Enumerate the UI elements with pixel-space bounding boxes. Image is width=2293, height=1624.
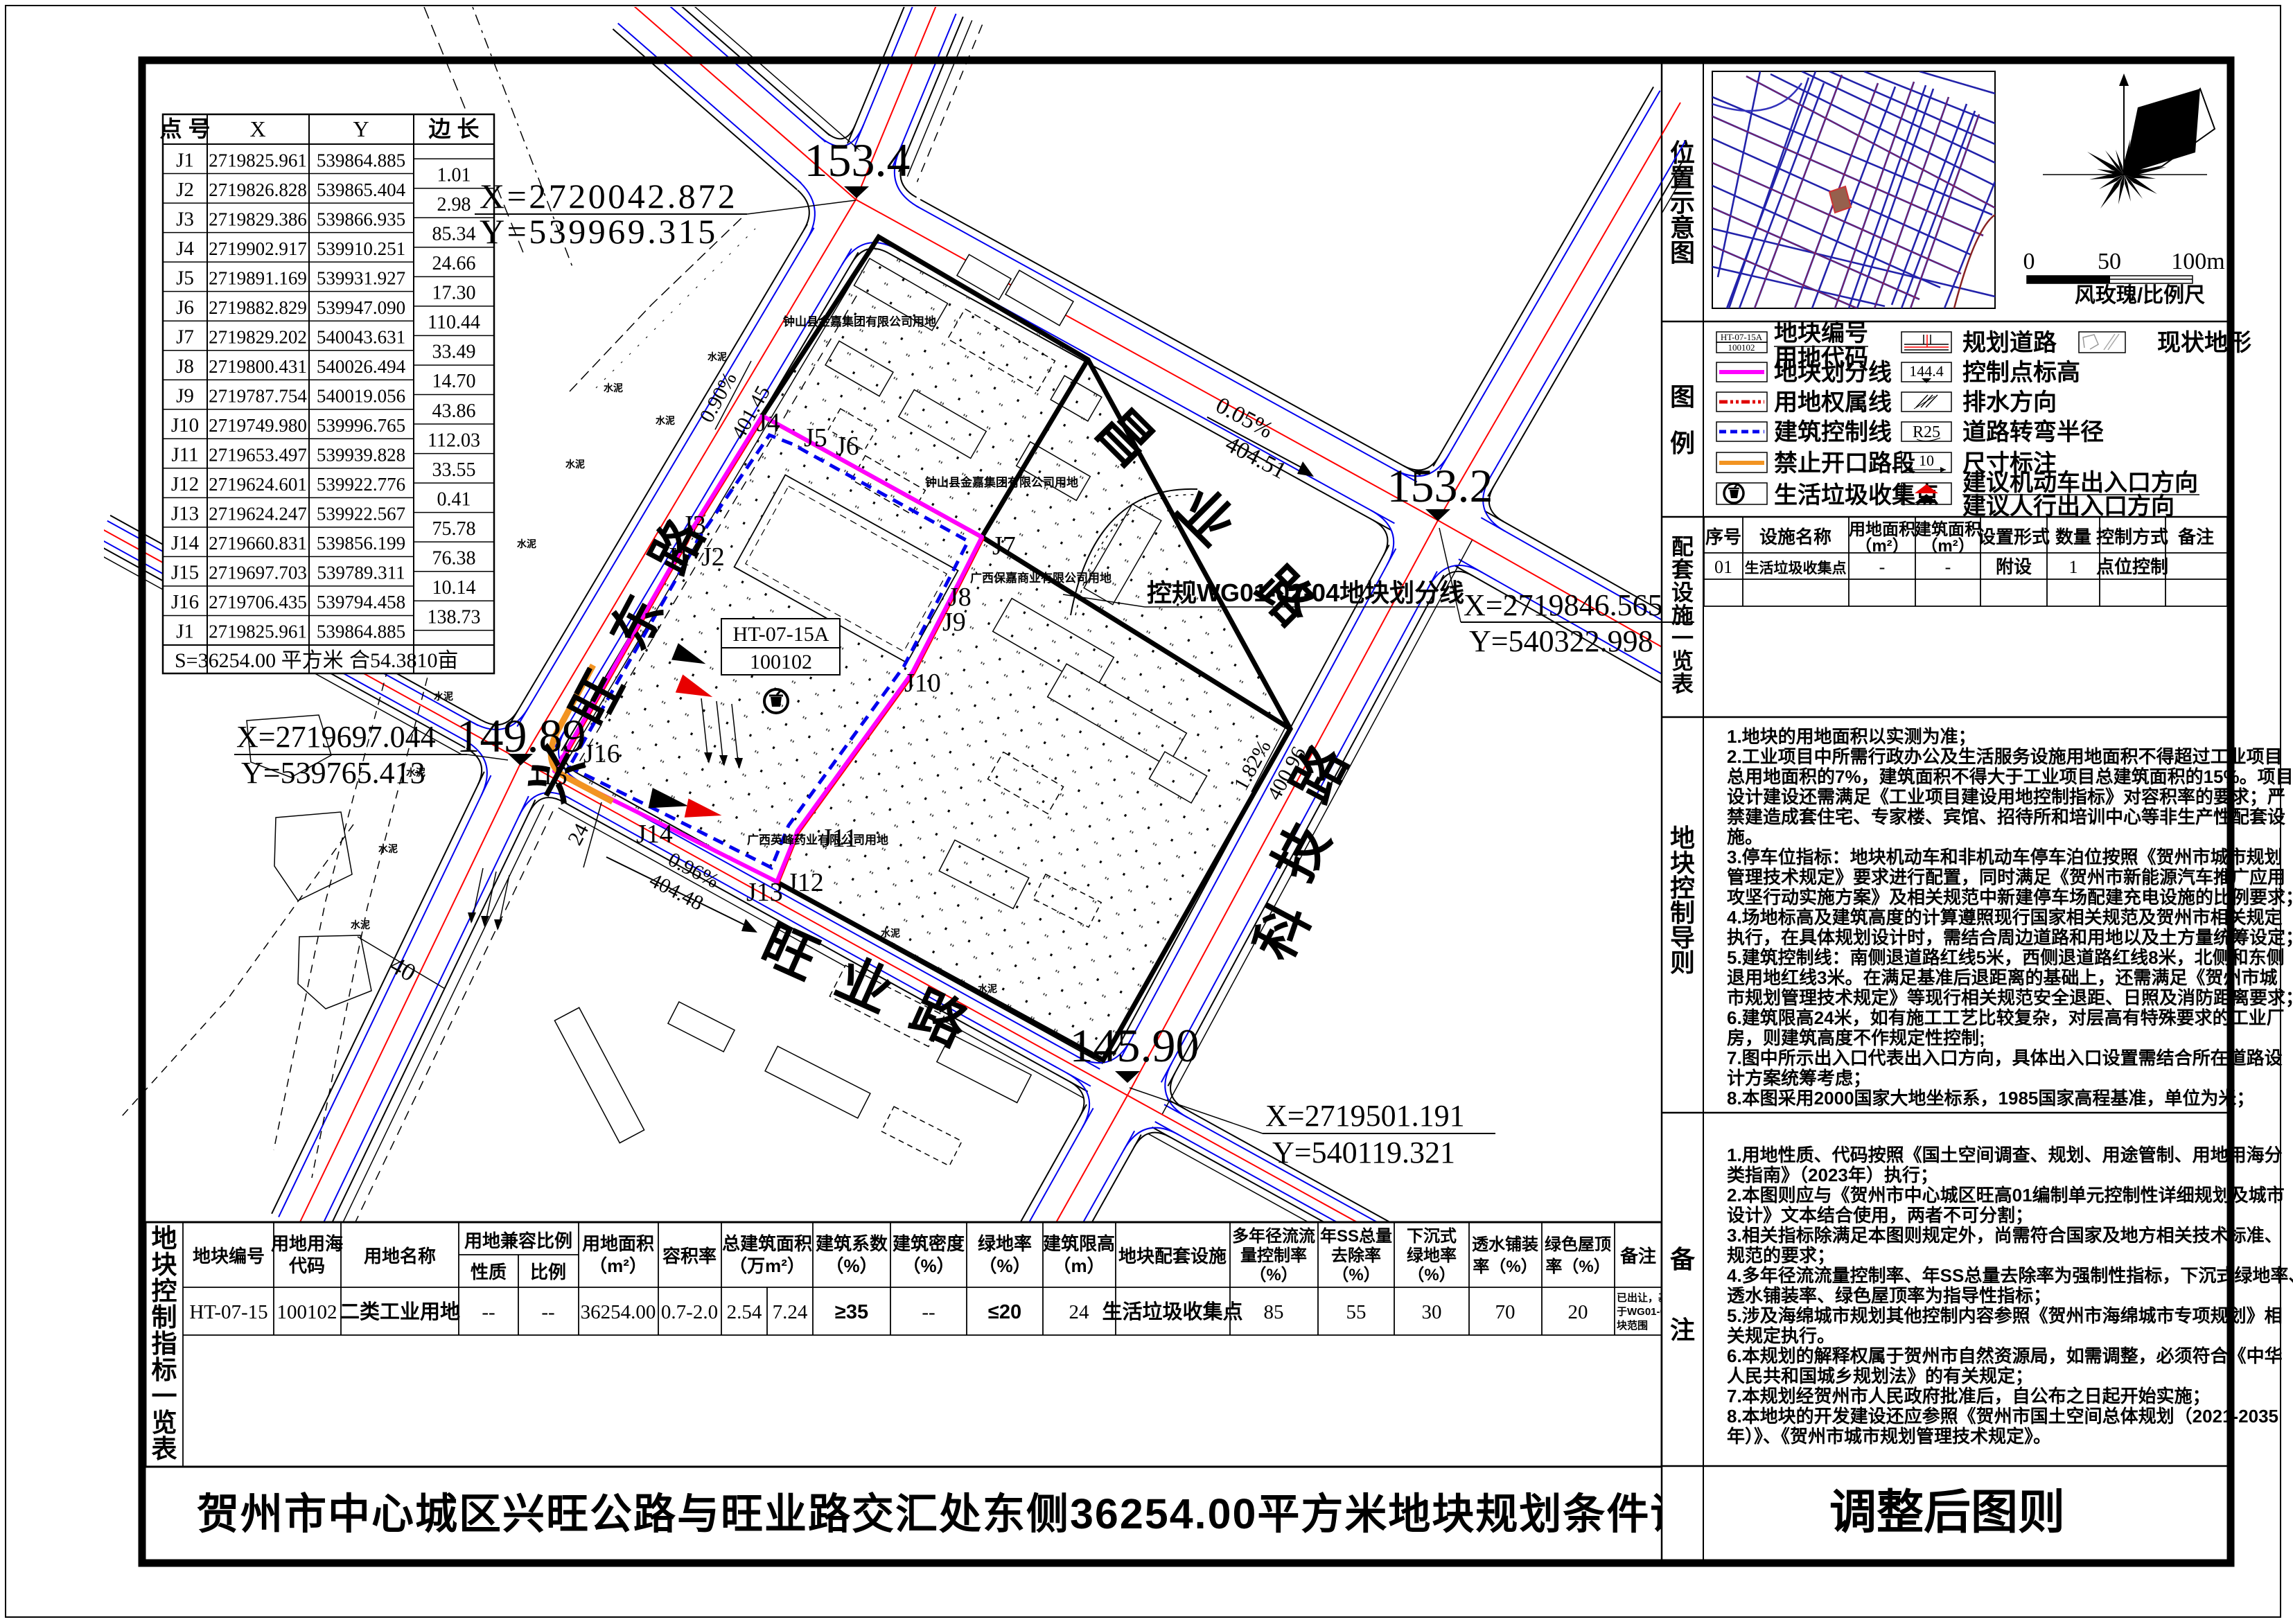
svg-text:539922.567: 539922.567 [317, 504, 405, 524]
svg-text:广西保嘉商业有限公司用地: 广西保嘉商业有限公司用地 [970, 571, 1112, 585]
svg-text:8.本地块的开发建设还应参照《贺州市国土空间总体规划（202: 8.本地块的开发建设还应参照《贺州市国土空间总体规划（2021-2035 [1727, 1406, 2278, 1427]
svg-text:R25: R25 [1913, 423, 1940, 441]
svg-text:（%）: （%） [1332, 1266, 1380, 1285]
svg-text:序号: 序号 [1705, 527, 1741, 547]
svg-text:76.38: 76.38 [432, 547, 476, 569]
svg-text:（m²）: （m²） [1855, 537, 1908, 556]
svg-text:（%）: （%） [825, 1255, 877, 1276]
svg-text:14.70: 14.70 [432, 371, 476, 392]
svg-text:注: 注 [1670, 1316, 1695, 1344]
svg-text:建议人行出入口方向: 建议人行出入口方向 [1962, 493, 2175, 520]
svg-text:-: - [1945, 557, 1951, 577]
svg-text:HT-07-15A: HT-07-15A [733, 623, 829, 646]
svg-text:控制方式: 控制方式 [2096, 527, 2168, 547]
svg-text:配: 配 [1671, 534, 1694, 559]
svg-text:539866.935: 539866.935 [317, 209, 405, 229]
svg-text:540043.631: 540043.631 [317, 326, 405, 347]
svg-text:（m²）: （m²） [589, 1255, 647, 1276]
svg-text:览: 览 [1671, 648, 1694, 673]
svg-text:33.49: 33.49 [432, 342, 476, 363]
svg-text:2719825.961: 2719825.961 [209, 621, 307, 642]
svg-text:539996.765: 539996.765 [317, 415, 405, 436]
svg-text:一: 一 [1671, 626, 1694, 651]
svg-text:控制点标高: 控制点标高 [1962, 360, 2080, 386]
svg-text:制: 制 [1670, 899, 1695, 927]
svg-text:2719829.386: 2719829.386 [209, 209, 307, 229]
svg-text:禁建造成套住宅、专家楼、宾馆、招待所和培训中心等非生产性配套: 禁建造成套住宅、专家楼、宾馆、招待所和培训中心等非生产性配套设 [1727, 806, 2285, 827]
svg-text:2719660.831: 2719660.831 [209, 533, 307, 554]
svg-text:建议机动车出入口方向: 建议机动车出入口方向 [1962, 470, 2198, 496]
svg-text:539922.776: 539922.776 [317, 474, 405, 495]
svg-text:153.4: 153.4 [805, 134, 911, 186]
svg-text:J10: J10 [904, 669, 941, 698]
svg-text:排水方向: 排水方向 [1962, 389, 2057, 416]
svg-text:J5: J5 [176, 267, 194, 289]
svg-text:J1: J1 [667, 542, 690, 572]
svg-text:X=2719697.044: X=2719697.044 [236, 720, 436, 754]
svg-text:HT-07-15: HT-07-15 [189, 1301, 267, 1323]
svg-text:套: 套 [1671, 557, 1694, 582]
svg-text:J1: J1 [176, 621, 194, 643]
svg-text:设计建设还需满足《工业项目建设用地控制指标》对容积率的要求；: 设计建设还需满足《工业项目建设用地控制指标》对容积率的要求；严 [1727, 786, 2285, 807]
svg-text:则: 则 [1670, 948, 1695, 977]
svg-text:55: 55 [1346, 1301, 1367, 1323]
svg-text:X=2719846.565: X=2719846.565 [1464, 588, 1663, 622]
svg-text:2719697.703: 2719697.703 [209, 563, 307, 583]
svg-text:图: 图 [1670, 238, 1695, 267]
svg-text:J7: J7 [176, 326, 194, 348]
svg-text:J13: J13 [171, 503, 199, 525]
svg-text:539910.251: 539910.251 [317, 238, 405, 259]
svg-text:--: -- [541, 1301, 554, 1323]
svg-text:539864.885: 539864.885 [317, 150, 405, 170]
svg-text:透水铺装率、绿色屋顶率为指导性指标；: 透水铺装率、绿色屋顶率为指导性指标； [1727, 1285, 2051, 1306]
svg-text:市规划管理技术规定》等现行相关规范安全退距、日照及消防距离要: 市规划管理技术规定》等现行相关规范安全退距、日照及消防距离要求； [1727, 987, 2293, 1008]
svg-text:制: 制 [152, 1303, 177, 1332]
svg-text:7.图中所示出入口代表出入口方向，具体出入口设置需结合所在道: 7.图中所示出入口代表出入口方向，具体出入口设置需结合所在道路设 [1727, 1048, 2283, 1068]
svg-text:J12: J12 [171, 473, 199, 495]
svg-text:年）》、《贺州市城市规划管理技术规定》。: 年）》、《贺州市城市规划管理技术规定》。 [1727, 1426, 2051, 1447]
svg-text:水泥: 水泥 [881, 928, 900, 939]
svg-text:透水铺装: 透水铺装 [1472, 1235, 1538, 1254]
svg-text:建筑控制线: 建筑控制线 [1774, 419, 1892, 445]
svg-text:控: 控 [1670, 874, 1695, 902]
svg-text:0.41: 0.41 [437, 488, 471, 510]
svg-text:0: 0 [2023, 249, 2035, 274]
svg-text:540019.056: 540019.056 [317, 386, 405, 407]
svg-text:2719826.828: 2719826.828 [209, 179, 307, 200]
svg-text:位: 位 [1670, 139, 1695, 167]
svg-text:100m: 100m [2171, 249, 2224, 274]
svg-text:总用地面积的7%，建筑面积不得大于工业项目总建筑面积的15%: 总用地面积的7%，建筑面积不得大于工业项目总建筑面积的15%。项目 [1727, 766, 2293, 787]
svg-text:（%）: （%） [978, 1255, 1030, 1276]
svg-text:17.30: 17.30 [432, 283, 476, 304]
svg-text:539865.404: 539865.404 [317, 179, 406, 200]
svg-text:代码: 代码 [288, 1255, 325, 1276]
svg-text:备: 备 [1670, 1245, 1696, 1273]
svg-text:块: 块 [1670, 849, 1695, 877]
svg-text:执行，在具体规划设计时，需结合周边道路和用地以及土方量统筹设: 执行，在具体规划设计时，需结合周边道路和用地以及土方量统筹设定； [1727, 927, 2293, 948]
svg-text:总建筑面积: 总建筑面积 [722, 1233, 812, 1254]
svg-text:J4: J4 [757, 408, 780, 437]
svg-text:Y=539969.315: Y=539969.315 [480, 212, 718, 251]
svg-text:539789.311: 539789.311 [317, 563, 405, 583]
svg-text:量控制率: 量控制率 [1240, 1246, 1307, 1265]
svg-text:1.地块的用地面积以实测为准；: 1.地块的用地面积以实测为准； [1727, 726, 1976, 747]
svg-text:J11: J11 [171, 444, 198, 466]
svg-text:例: 例 [1670, 429, 1695, 457]
svg-text:2.本图则应与《贺州市中心城区旺高01编制单元控制性详细规划: 2.本图则应与《贺州市中心城区旺高01编制单元控制性详细规划及城市 [1727, 1185, 2285, 1206]
svg-text:4.多年径流流量控制率、年SS总量去除率为强制性指标，下沉式: 4.多年径流流量控制率、年SS总量去除率为强制性指标，下沉式绿地率、 [1727, 1265, 2293, 1286]
svg-text:J8: J8 [176, 355, 194, 378]
svg-text:J14: J14 [171, 532, 200, 554]
svg-text:2719706.435: 2719706.435 [209, 592, 307, 612]
svg-text:用地权属线: 用地权属线 [1774, 389, 1892, 416]
svg-text:用地名称: 用地名称 [364, 1246, 436, 1266]
svg-text:边 长: 边 长 [429, 116, 480, 141]
svg-text:施。: 施。 [1727, 827, 1763, 847]
svg-text:房，则建筑高度不作规定性控制;: 房，则建筑高度不作规定性控制; [1727, 1027, 1985, 1048]
svg-text:水泥: 水泥 [656, 415, 675, 426]
svg-text:建筑限高: 建筑限高 [1043, 1233, 1115, 1254]
svg-text:1.01: 1.01 [437, 165, 471, 186]
svg-text:点位控制: 点位控制 [2096, 556, 2168, 577]
svg-text:J2: J2 [701, 542, 725, 572]
svg-text:Y=540119.321: Y=540119.321 [1272, 1136, 1455, 1170]
svg-text:人民共和国城乡规划法》的有关规定；: 人民共和国城乡规划法》的有关规定； [1727, 1366, 2033, 1386]
svg-text:8.本图采用2000国家大地坐标系，1985国家高程基准，单: 8.本图采用2000国家大地坐标系，1985国家高程基准，单位为米； [1727, 1088, 2254, 1109]
svg-text:类指南》（2023年）执行；: 类指南》（2023年）执行； [1727, 1165, 1938, 1185]
svg-text:2719825.961: 2719825.961 [209, 150, 307, 170]
svg-text:水泥: 水泥 [708, 351, 727, 362]
svg-text:建筑密度: 建筑密度 [893, 1233, 965, 1254]
svg-text:Y=540322.998: Y=540322.998 [1469, 624, 1653, 658]
svg-text:现状地形: 现状地形 [2157, 330, 2251, 356]
svg-text:性质: 性质 [471, 1262, 507, 1282]
svg-text:2719902.917: 2719902.917 [209, 238, 307, 259]
svg-text:备注: 备注 [1619, 1246, 1656, 1266]
svg-text:风玫瑰/比例尺: 风玫瑰/比例尺 [2075, 284, 2205, 307]
svg-text:控规WG01-02-04地块划分线: 控规WG01-02-04地块划分线 [1147, 579, 1464, 607]
svg-text:地块配套设施: 地块配套设施 [1118, 1246, 1227, 1266]
svg-text:用地面积: 用地面积 [582, 1233, 654, 1254]
svg-text:01: 01 [1714, 557, 1732, 577]
svg-text:建筑面积: 建筑面积 [1915, 520, 1981, 539]
svg-text:153.2: 153.2 [1387, 459, 1493, 512]
svg-text:75.78: 75.78 [432, 518, 476, 540]
svg-text:设置形式: 设置形式 [1978, 527, 2050, 547]
svg-text:设施名称: 设施名称 [1759, 527, 1831, 547]
svg-text:（m²）: （m²） [1921, 537, 1974, 556]
svg-text:0.7-2.0: 0.7-2.0 [661, 1301, 718, 1323]
svg-text:5.涉及海绵城市规划其他控制内容参照《贺州市海绵城市专项规划: 5.涉及海绵城市规划其他控制内容参照《贺州市海绵城市专项规划》相 [1727, 1305, 2283, 1326]
svg-text:539856.199: 539856.199 [317, 533, 405, 554]
svg-text:地块编号: 地块编号 [193, 1246, 265, 1266]
svg-text:J4: J4 [176, 238, 194, 260]
svg-text:（万m²）: （万m²） [729, 1255, 805, 1276]
svg-text:100102: 100102 [750, 651, 812, 673]
svg-text:2719882.829: 2719882.829 [209, 297, 307, 318]
svg-text:水泥: 水泥 [565, 459, 585, 470]
svg-text:绿地率: 绿地率 [978, 1233, 1032, 1254]
svg-text:调整后图则: 调整后图则 [1829, 1486, 2065, 1539]
svg-text:容积率: 容积率 [662, 1246, 717, 1266]
svg-text:生活垃圾收集点: 生活垃圾收集点 [1745, 560, 1847, 576]
svg-text:水泥: 水泥 [351, 919, 370, 930]
svg-text:J3: J3 [683, 511, 706, 540]
svg-text:--: -- [482, 1301, 495, 1323]
svg-text:85.34: 85.34 [432, 224, 476, 245]
svg-text:J9: J9 [942, 608, 966, 637]
svg-text:144.4: 144.4 [1909, 362, 1944, 380]
svg-text:水泥: 水泥 [434, 691, 453, 702]
svg-text:6.本规划的解释权属于贺州市自然资源局，如需调整，必须符合《: 6.本规划的解释权属于贺州市自然资源局，如需调整，必须符合《中华 [1727, 1345, 2283, 1366]
svg-text:设: 设 [1671, 580, 1694, 605]
svg-text:2719624.247: 2719624.247 [209, 504, 307, 524]
svg-text:138.73: 138.73 [428, 606, 481, 628]
svg-text:112.03: 112.03 [428, 430, 480, 451]
svg-text:（%）: （%） [1407, 1266, 1455, 1285]
svg-text:2719829.202: 2719829.202 [209, 326, 307, 347]
svg-text:J6: J6 [176, 297, 194, 319]
svg-text:率（%）: 率（%） [1545, 1257, 1610, 1276]
svg-text:数量: 数量 [2055, 527, 2091, 547]
svg-text:10: 10 [1919, 452, 1934, 469]
svg-text:J5: J5 [804, 423, 827, 452]
svg-text:J12: J12 [787, 868, 824, 897]
svg-text:J3: J3 [176, 208, 194, 230]
svg-text:多年径流流: 多年径流流 [1232, 1226, 1315, 1246]
svg-text:用地兼容比例: 用地兼容比例 [464, 1230, 572, 1251]
svg-text:设计》文本结合使用，两者不可分割；: 设计》文本结合使用，两者不可分割； [1727, 1205, 2033, 1226]
svg-text:比例: 比例 [530, 1262, 566, 1282]
svg-text:70: 70 [1495, 1301, 1516, 1323]
svg-text:20: 20 [1568, 1301, 1588, 1323]
svg-text:2719653.497: 2719653.497 [209, 445, 307, 466]
svg-text:计方案统筹考虑；: 计方案统筹考虑； [1727, 1068, 1871, 1088]
svg-text:2719787.754: 2719787.754 [209, 386, 307, 407]
svg-text:J13: J13 [746, 878, 783, 907]
svg-text:J16: J16 [583, 739, 620, 768]
svg-text:道路转弯半径: 道路转弯半径 [1962, 418, 2104, 445]
svg-text:2.工业项目中所需行政办公及生活服务设施用地面积不得超过工业: 2.工业项目中所需行政办公及生活服务设施用地面积不得超过工业项目 [1727, 746, 2283, 767]
svg-text:攻坚行动实施方案》及相关规范中新建停车场配建充电设施的比例要: 攻坚行动实施方案》及相关规范中新建停车场配建充电设施的比例要求； [1727, 887, 2293, 908]
svg-text:控: 控 [152, 1277, 177, 1305]
svg-text:3.停车位指标：地块机动车和非机动车停车泊位按照《贺州市城市: 3.停车位指标：地块机动车和非机动车停车泊位按照《贺州市城市规划 [1727, 847, 2283, 867]
svg-text:X=2719501.191: X=2719501.191 [1265, 1099, 1465, 1133]
svg-text:表: 表 [1671, 671, 1694, 696]
svg-text:J6: J6 [836, 432, 859, 461]
svg-text:36254.00: 36254.00 [581, 1301, 656, 1323]
svg-text:539794.458: 539794.458 [317, 592, 405, 612]
svg-text:2719749.980: 2719749.980 [209, 415, 307, 436]
svg-text:年SS总量: 年SS总量 [1320, 1226, 1392, 1246]
svg-text:J14: J14 [636, 820, 673, 849]
svg-text:100102: 100102 [277, 1301, 337, 1323]
svg-text:J2: J2 [176, 179, 194, 201]
svg-text:下沉式: 下沉式 [1407, 1227, 1457, 1246]
svg-text:地: 地 [1670, 824, 1695, 852]
svg-text:J15: J15 [171, 562, 199, 584]
svg-text:块: 块 [152, 1251, 177, 1279]
svg-text:生活垃圾收集点: 生活垃圾收集点 [1102, 1300, 1242, 1323]
svg-text:110.44: 110.44 [428, 312, 480, 333]
svg-text:X: X [249, 116, 265, 141]
svg-text:7.24: 7.24 [773, 1301, 808, 1323]
svg-text:绿色屋顶: 绿色屋顶 [1545, 1235, 1611, 1254]
svg-text:（%）: （%） [902, 1255, 954, 1276]
svg-text:退用地红线3米。在满足基准后退距离的基础上，还需满足《贺州市: 退用地红线3米。在满足基准后退距离的基础上，还需满足《贺州市城 [1727, 967, 2277, 988]
svg-text:J9: J9 [176, 385, 194, 407]
svg-text:览: 览 [152, 1409, 177, 1437]
svg-text:539864.885: 539864.885 [317, 621, 405, 642]
svg-text:一: 一 [152, 1382, 177, 1411]
svg-text:24.66: 24.66 [432, 253, 476, 274]
svg-text:S=36254.00 平方米 合54.3810亩: S=36254.00 平方米 合54.3810亩 [175, 649, 458, 672]
svg-text:2719800.431: 2719800.431 [209, 356, 307, 377]
svg-text:J7: J7 [992, 531, 1016, 561]
svg-text:2.54: 2.54 [727, 1301, 762, 1323]
svg-text:539947.090: 539947.090 [317, 297, 405, 318]
svg-text:≤20: ≤20 [988, 1301, 1021, 1323]
svg-text:1.用地性质、代码按照《国土空间调查、规划、用途管制、用地用: 1.用地性质、代码按照《国土空间调查、规划、用途管制、用地用海分 [1727, 1145, 2283, 1165]
svg-text:2.98: 2.98 [437, 194, 471, 215]
svg-text:广西英峰药业有限公司用地: 广西英峰药业有限公司用地 [747, 833, 888, 847]
svg-text:4.场地标高及建筑高度的计算遵照现行国家相关规范及贺州市相关: 4.场地标高及建筑高度的计算遵照现行国家相关规范及贺州市相关规定 [1727, 907, 2283, 928]
svg-text:1: 1 [2069, 557, 2078, 577]
svg-text:地: 地 [152, 1224, 177, 1253]
svg-text:（%）: （%） [1249, 1266, 1297, 1285]
svg-text:43.86: 43.86 [432, 400, 476, 422]
svg-text:点 号: 点 号 [160, 116, 211, 141]
svg-text:水泥: 水泥 [517, 538, 536, 549]
svg-text:6.建筑限高24米，如有施工工艺比较复杂，对层高有特殊要求的: 6.建筑限高24米，如有施工工艺比较复杂，对层高有特殊要求的工业厂 [1727, 1007, 2285, 1028]
svg-text:2719891.169: 2719891.169 [209, 267, 307, 288]
svg-text:地块划分线: 地块划分线 [1774, 360, 1892, 386]
svg-text:去除率: 去除率 [1331, 1246, 1381, 1265]
svg-text:Y: Y [353, 116, 369, 141]
svg-text:水泥: 水泥 [978, 983, 997, 994]
svg-text:HT-07-15A: HT-07-15A [1721, 332, 1763, 342]
svg-text:539939.828: 539939.828 [317, 445, 405, 466]
svg-text:关规定执行。: 关规定执行。 [1727, 1325, 1835, 1346]
svg-text:100102: 100102 [1728, 342, 1755, 353]
svg-text:用地面积: 用地面积 [1849, 520, 1915, 539]
svg-text:附设: 附设 [1996, 556, 2032, 577]
svg-text:建筑系数: 建筑系数 [816, 1233, 888, 1254]
svg-text:水泥: 水泥 [604, 382, 623, 394]
svg-text:-: - [1879, 557, 1886, 577]
svg-text:意: 意 [1670, 213, 1695, 242]
svg-text:50: 50 [2098, 249, 2121, 274]
svg-text:85: 85 [1264, 1301, 1284, 1323]
svg-text:管理技术规定》要求进行配置，同时满足《贺州市新能源汽车推广应: 管理技术规定》要求进行配置，同时满足《贺州市新能源汽车推广应用 [1727, 867, 2285, 888]
svg-text:3.相关指标除满足本图则规定外，尚需符合国家及地方相关技术标: 3.相关指标除满足本图则规定外，尚需符合国家及地方相关技术标准、 [1727, 1225, 2283, 1246]
svg-text:规划道路: 规划道路 [1962, 330, 2057, 356]
svg-text:率（%）: 率（%） [1473, 1257, 1537, 1276]
svg-text:33.55: 33.55 [432, 459, 476, 481]
svg-text:备注: 备注 [2177, 527, 2214, 547]
svg-text:5.建筑控制线：南侧退道路红线5米，西侧退道路红线8米，北侧: 5.建筑控制线：南侧退道路红线5米，西侧退道路红线8米，北侧和东侧 [1727, 947, 2285, 968]
svg-text:10.14: 10.14 [432, 577, 476, 599]
svg-text:X=2720042.872: X=2720042.872 [480, 177, 737, 215]
svg-text:钟山县金嘉集团有限公司用地: 钟山县金嘉集团有限公司用地 [925, 475, 1078, 489]
svg-text:表: 表 [152, 1435, 177, 1463]
svg-text:7.本规划经贺州市人民政府批准后，自公布之日起开始实施；: 7.本规划经贺州市人民政府批准后，自公布之日起开始实施； [1727, 1386, 2211, 1406]
svg-text:绿地率: 绿地率 [1407, 1246, 1457, 1265]
svg-text:≥35: ≥35 [835, 1301, 868, 1323]
svg-text:标: 标 [152, 1356, 177, 1384]
svg-text:水泥: 水泥 [378, 843, 398, 854]
svg-text:（m）: （m） [1053, 1255, 1105, 1276]
svg-text:二类工业用地: 二类工业用地 [340, 1300, 460, 1323]
svg-text:用地用海: 用地用海 [271, 1233, 343, 1254]
svg-text:指: 指 [152, 1330, 177, 1358]
svg-text:禁止开口路段: 禁止开口路段 [1774, 450, 1915, 477]
svg-text:块范围: 块范围 [1617, 1319, 1648, 1332]
svg-text:540026.494: 540026.494 [317, 356, 406, 377]
svg-text:J16: J16 [171, 591, 199, 613]
svg-text:规范的要求；: 规范的要求； [1727, 1245, 1835, 1266]
svg-text:图: 图 [1670, 382, 1695, 411]
svg-text:导: 导 [1670, 924, 1695, 952]
svg-text:J15: J15 [531, 761, 568, 791]
svg-text:2719624.601: 2719624.601 [209, 474, 307, 495]
svg-text:--: -- [922, 1301, 935, 1323]
svg-text:539931.927: 539931.927 [317, 267, 405, 288]
svg-text:钟山县金嘉集团有限公司用地: 钟山县金嘉集团有限公司用地 [783, 315, 936, 328]
svg-text:30: 30 [1422, 1301, 1442, 1323]
svg-text:地块编号: 地块编号 [1774, 320, 1868, 346]
svg-text:施: 施 [1671, 603, 1694, 628]
svg-text:24: 24 [1069, 1301, 1090, 1323]
svg-text:J10: J10 [171, 414, 199, 436]
svg-text:J1: J1 [176, 149, 194, 171]
svg-text:145.90: 145.90 [1070, 1019, 1200, 1072]
svg-text:Y=539765.413: Y=539765.413 [241, 756, 425, 790]
